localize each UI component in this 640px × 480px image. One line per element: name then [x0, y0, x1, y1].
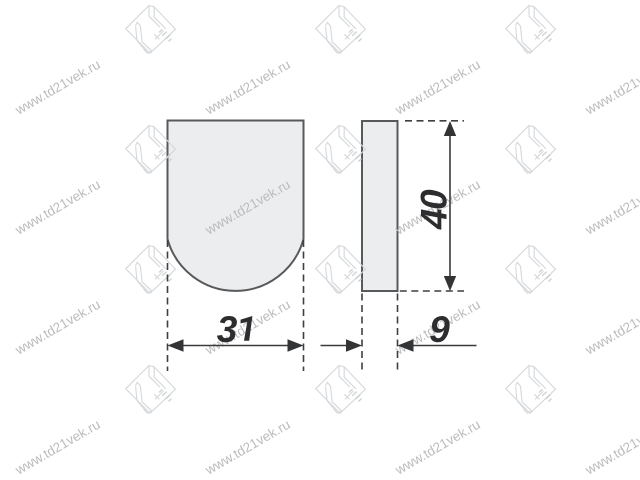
svg-text:40: 40 — [414, 189, 455, 230]
svg-text:9: 9 — [429, 309, 450, 350]
svg-text:3: 3 — [217, 309, 238, 350]
